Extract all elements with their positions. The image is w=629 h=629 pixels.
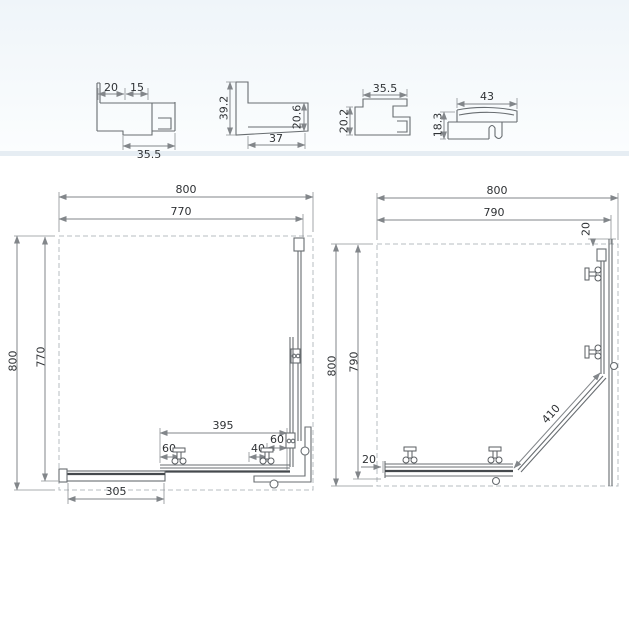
dim-closed-305: 305	[106, 485, 127, 498]
right-wall-profile	[609, 239, 612, 486]
dim-p2-20-6: 20.6	[291, 105, 304, 130]
roller-icon	[585, 345, 601, 359]
technical-drawing: 20 15 35.5 39.2 20.6 37 35.5 20.2	[0, 0, 629, 629]
dim-p4-18-3: 18.3	[432, 113, 445, 138]
dim-open-790-left: 790	[348, 352, 361, 373]
door-top-bracket	[597, 249, 606, 261]
handle-knob-icon	[493, 478, 500, 485]
profile1-body	[97, 102, 175, 135]
technical-drawing-canvas: 20 15 35.5 39.2 20.6 37 35.5 20.2	[0, 0, 629, 629]
sliding-door-panel	[62, 471, 165, 481]
dim-closed-770-left: 770	[35, 347, 48, 368]
roller-icon	[488, 447, 502, 463]
dim-p4-43: 43	[480, 90, 494, 103]
roller-icon	[585, 267, 601, 281]
handle-knob-icon	[611, 363, 618, 370]
dim-closed-800-top: 800	[176, 183, 197, 196]
dim-closed-800-left: 800	[7, 351, 20, 372]
profile-section-4: 43 18.3	[432, 90, 518, 139]
dim-p3-35-5: 35.5	[373, 82, 398, 95]
top-wall-bracket	[294, 238, 304, 251]
bottom-fixed-panel	[160, 465, 290, 468]
roller-icon	[172, 448, 186, 464]
profile4-hook	[448, 122, 502, 139]
dim-open-790-top: 790	[484, 206, 505, 219]
dim-open-800-left: 800	[326, 356, 339, 377]
plan-view-open: 800 790 800 790 20 410 20	[326, 184, 619, 486]
door-end-cap	[59, 469, 67, 482]
right-glass-panel	[298, 251, 301, 441]
dim-p3-20-2: 20.2	[338, 109, 351, 134]
dim-open-410: 410	[539, 402, 563, 426]
profile4-blade	[457, 107, 517, 122]
profile-section-1: 20 15 35.5	[97, 81, 175, 161]
dim-closed-770-top: 770	[171, 205, 192, 218]
profile1-tab	[97, 83, 100, 131]
handle-knob-icon	[301, 447, 309, 455]
dim-p1-15: 15	[130, 81, 144, 94]
dim-open-20-top: 20	[580, 222, 593, 236]
handle-knob-icon	[270, 480, 278, 488]
bottom-fixed-panel	[385, 461, 513, 478]
dim-p2-37: 37	[269, 132, 283, 145]
dim-closed-395: 395	[213, 419, 234, 432]
dim-open-20-bottom: 20	[362, 453, 376, 466]
dim-closed-60-right: 60	[270, 433, 284, 446]
dim-p1-20: 20	[104, 81, 118, 94]
dim-open-800-top: 800	[487, 184, 508, 197]
dim-p1-35-5: 35.5	[137, 148, 162, 161]
diagonal-door-panel	[518, 376, 606, 472]
roller-icon	[403, 447, 417, 463]
dim-p2-39-2: 39.2	[218, 96, 231, 121]
profile3-body	[355, 99, 410, 135]
plan-view-closed: 800 770 800 770 395 60 40 60 305	[7, 183, 314, 504]
profile-section-3: 35.5 20.2	[338, 82, 411, 135]
profile-section-2: 39.2 20.6 37	[218, 82, 309, 149]
enclosure-outline-dashed	[59, 236, 313, 490]
